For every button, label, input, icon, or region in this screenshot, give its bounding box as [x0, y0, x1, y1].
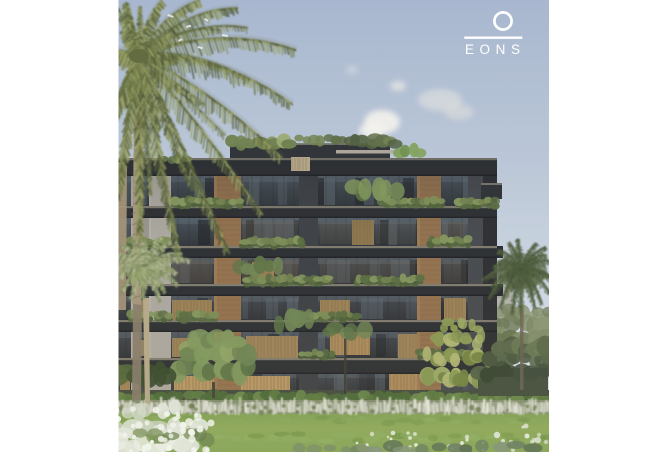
svg-text:EONS: EONS [465, 42, 526, 57]
